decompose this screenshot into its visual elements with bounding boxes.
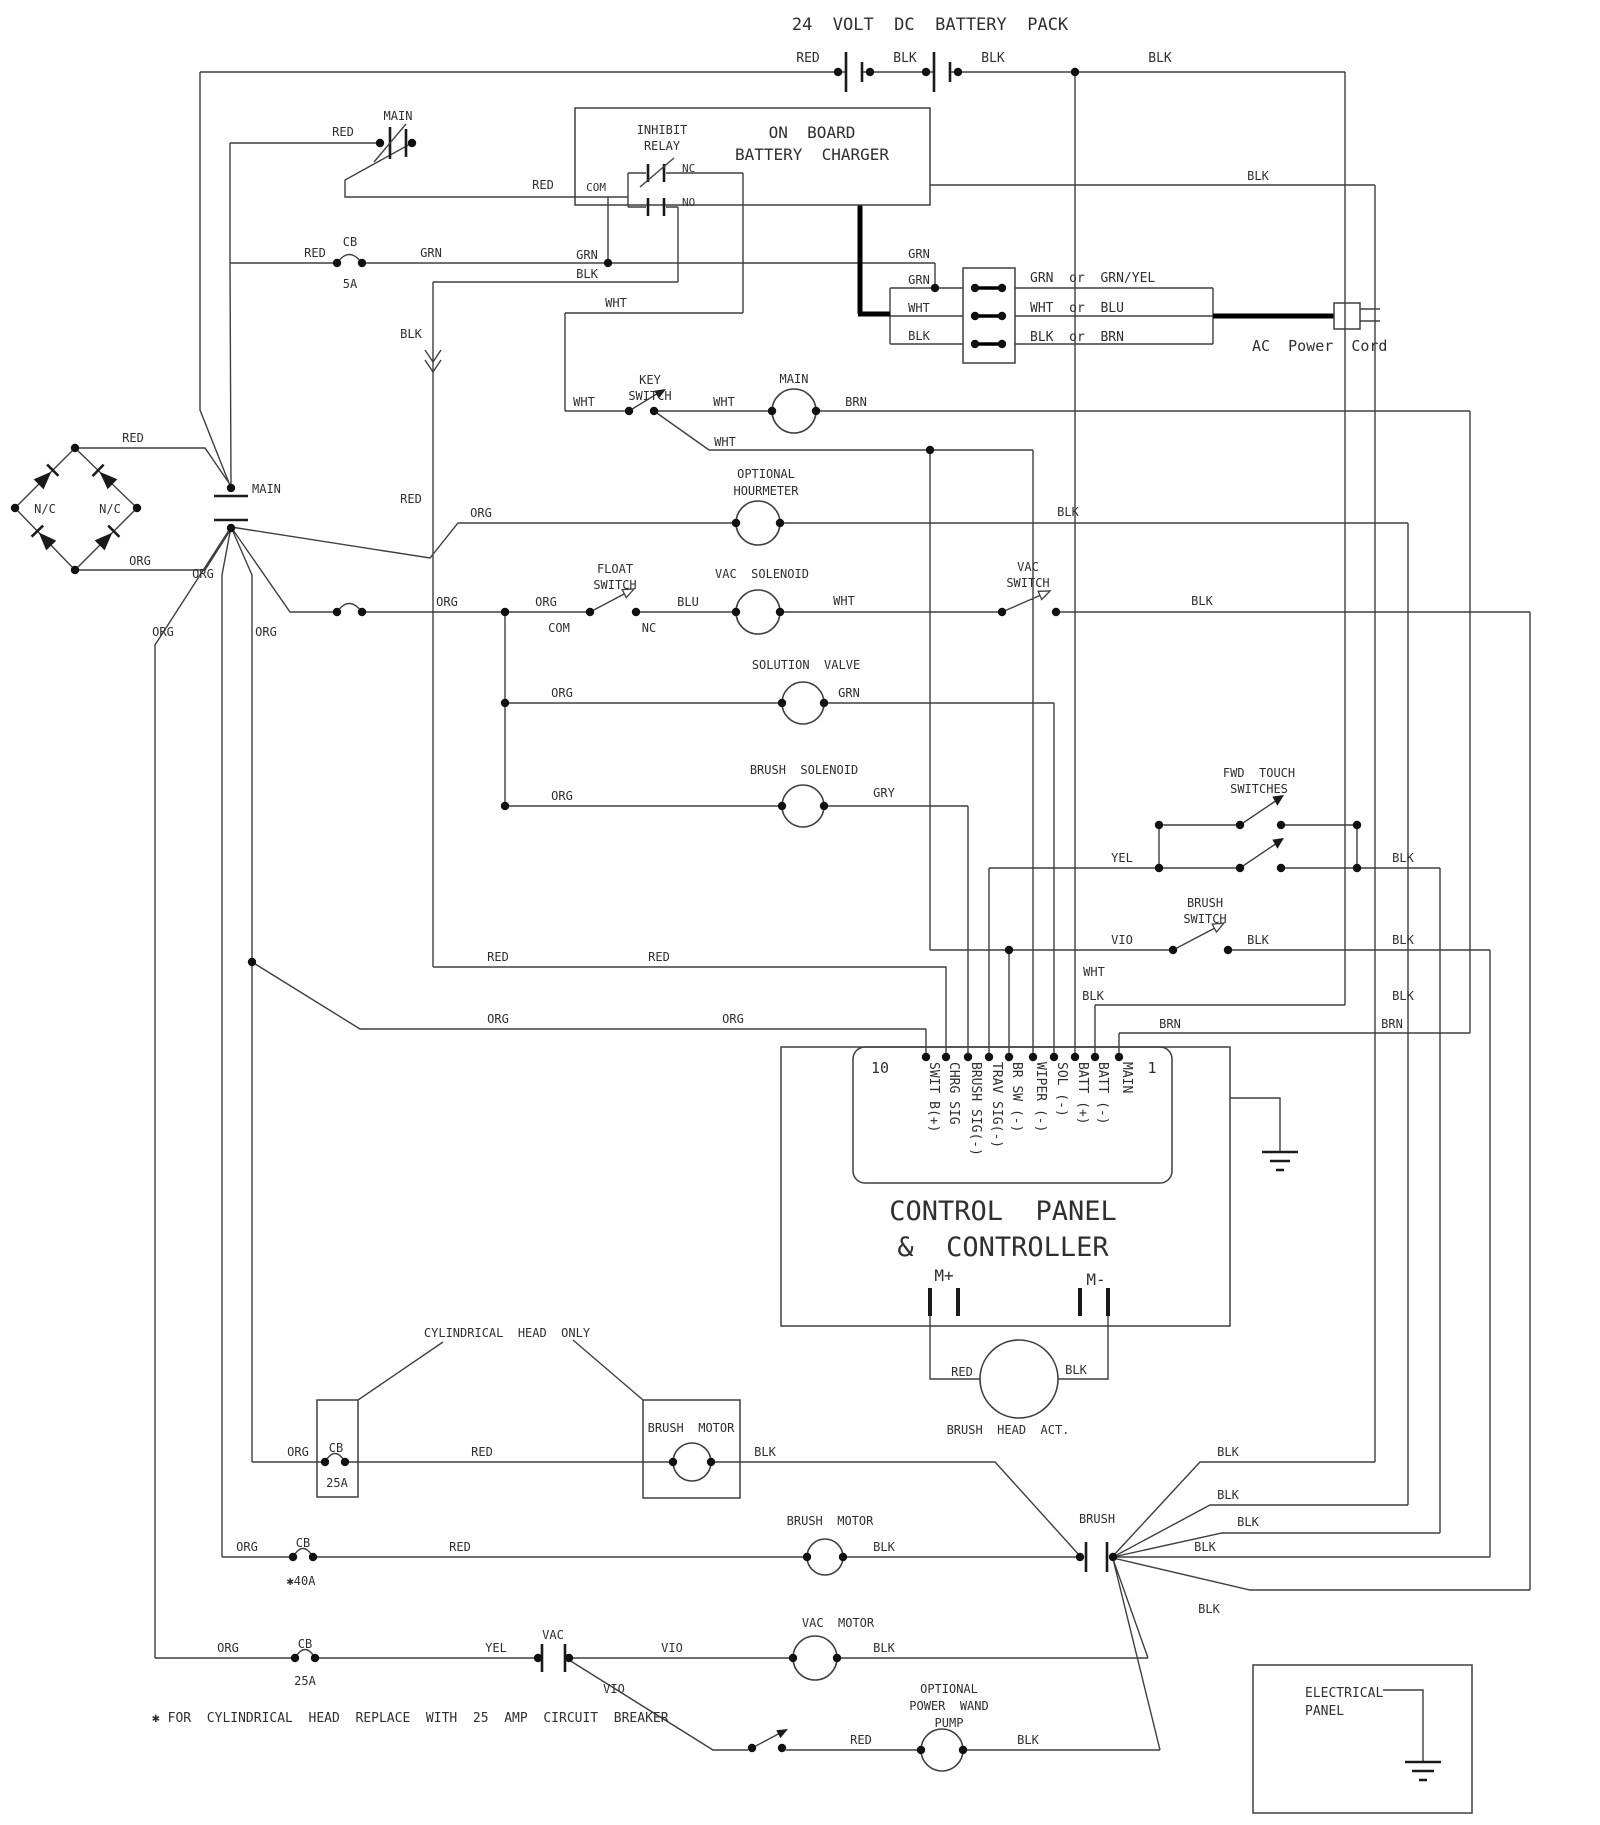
junction-dot bbox=[1224, 946, 1232, 954]
junction-dot bbox=[227, 484, 235, 492]
label-fan-blk-3: BLK bbox=[1237, 1515, 1259, 1529]
label-bridge-nc-right: N/C bbox=[99, 502, 121, 516]
label-floatswitch-org2: ORG bbox=[535, 595, 557, 609]
junction-dot bbox=[931, 284, 939, 292]
junction-dot bbox=[669, 1458, 677, 1466]
junction-dot bbox=[333, 259, 341, 267]
junction-dot bbox=[248, 958, 256, 966]
label-main-switch-label: MAIN bbox=[384, 109, 413, 123]
junction-dot bbox=[604, 259, 612, 267]
junction-dot bbox=[1109, 1553, 1117, 1561]
label-brushmotor2-blk: BLK bbox=[873, 1540, 895, 1554]
label-solutionvalve-grn: GRN bbox=[838, 686, 860, 700]
label-vacmotor-blk: BLK bbox=[873, 1641, 895, 1655]
label-hourmeter-2: HOURMETER bbox=[733, 484, 799, 498]
label-battery-blk-3: BLK bbox=[1148, 51, 1172, 66]
junction-dot bbox=[227, 524, 235, 532]
ac-plug bbox=[1334, 303, 1360, 329]
label-cb2-amps: 25A bbox=[326, 1476, 348, 1490]
junction-dot bbox=[1071, 68, 1079, 76]
junction-dot bbox=[71, 444, 79, 452]
junction-dot bbox=[632, 608, 640, 616]
label-ac-alt-wht: WHT or BLU bbox=[1030, 301, 1124, 316]
junction-dot bbox=[1091, 1053, 1099, 1061]
fwd-touch-arrow-icon bbox=[1272, 838, 1284, 849]
ground-icon bbox=[1262, 1152, 1298, 1170]
junction-dot bbox=[707, 1458, 715, 1466]
junction-dot bbox=[1155, 864, 1163, 872]
label-brushsolenoid-gry: GRY bbox=[873, 786, 895, 800]
brush-motor-1 bbox=[673, 1443, 711, 1481]
junction-dot bbox=[333, 608, 341, 616]
label-controller-name-2: & CONTROLLER bbox=[897, 1232, 1109, 1263]
label-vacsolenoid-blu: BLU bbox=[677, 595, 699, 609]
label-bus-org-2: ORG bbox=[152, 625, 174, 639]
label-charger-blk-out: BLK bbox=[1247, 169, 1269, 183]
label-vacmotor-vio: VIO bbox=[661, 1641, 683, 1655]
junction-dot bbox=[922, 1053, 930, 1061]
junction-dot bbox=[971, 284, 979, 292]
label-brushsolenoid-org: ORG bbox=[551, 789, 573, 803]
junction-dot bbox=[501, 802, 509, 810]
label-cb1-grn: GRN bbox=[420, 246, 442, 260]
label-pin-sol: SOL (-) bbox=[1054, 1062, 1069, 1117]
junction-dot bbox=[971, 312, 979, 320]
label-keyswitch-1: KEY bbox=[639, 373, 661, 387]
junction-dot bbox=[985, 1053, 993, 1061]
junction-dot bbox=[358, 608, 366, 616]
junction-dot bbox=[650, 407, 658, 415]
label-act-blk: BLK bbox=[1065, 1363, 1087, 1377]
junction-dot bbox=[768, 407, 776, 415]
label-hourmeter-blk: BLK bbox=[1057, 505, 1079, 519]
label-orgrow-1: ORG bbox=[487, 1012, 509, 1026]
label-main-coil-label: MAIN bbox=[780, 372, 809, 386]
junction-dot bbox=[998, 284, 1006, 292]
junction-dot bbox=[1277, 864, 1285, 872]
junction-dot bbox=[998, 312, 1006, 320]
label-brushswitch-vio: VIO bbox=[1111, 933, 1133, 947]
label-blkrow-2: BLK bbox=[1392, 989, 1414, 1003]
solution-valve bbox=[782, 682, 824, 724]
junction-dot bbox=[954, 68, 962, 76]
label-brushmotor2-red: RED bbox=[449, 1540, 471, 1554]
label-vacsolenoid-wht: WHT bbox=[833, 594, 855, 608]
junction-dot bbox=[778, 1744, 786, 1752]
nc-slash bbox=[374, 124, 674, 187]
labels: 24 VOLT DC BATTERY PACKREDBLKBLKBLKMAINR… bbox=[34, 15, 1414, 1747]
label-keyswitch-2: SWITCH bbox=[628, 389, 671, 403]
label-main-disconnect-label: MAIN bbox=[252, 482, 281, 496]
inhibit-relay-plates bbox=[648, 164, 664, 216]
label-brushswitch-2: SWITCH bbox=[1183, 912, 1226, 926]
label-cb1-amps: 5A bbox=[343, 277, 358, 291]
label-floatswitch-nc: NC bbox=[642, 621, 656, 635]
label-fwdtouch-yel: YEL bbox=[1111, 851, 1133, 865]
junction-dot bbox=[1353, 864, 1361, 872]
label-floatswitch-com: COM bbox=[548, 621, 570, 635]
label-bridge-red: RED bbox=[122, 431, 144, 445]
label-keyswitch-wht-in: WHT bbox=[573, 395, 595, 409]
label-pin-trav-sig: TRAV SIG(-) bbox=[989, 1062, 1004, 1148]
brush-contact-plates bbox=[1086, 1542, 1107, 1572]
label-vacswitch-blk: BLK bbox=[1191, 594, 1213, 608]
label-pump-blk: BLK bbox=[1017, 1733, 1039, 1747]
junction-dot bbox=[1071, 1053, 1079, 1061]
label-brushmotor1-blk: BLK bbox=[754, 1445, 776, 1459]
junction-dot bbox=[1050, 1053, 1058, 1061]
label-brnrow-1: BRN bbox=[1159, 1017, 1181, 1031]
label-fwdtouch-blk: BLK bbox=[1392, 851, 1414, 865]
label-ac-grn-in: GRN bbox=[908, 247, 930, 261]
label-orgrow-2: ORG bbox=[722, 1012, 744, 1026]
junction-dot bbox=[1155, 821, 1163, 829]
label-pin-wiper: WIPER (-) bbox=[1033, 1062, 1048, 1132]
main-relay-coil bbox=[772, 389, 816, 433]
label-hourmeter-org: ORG bbox=[470, 506, 492, 520]
junction-dot bbox=[917, 1746, 925, 1754]
label-redrow-2: RED bbox=[648, 950, 670, 964]
label-ac-alt-blk: BLK or BRN bbox=[1030, 330, 1124, 345]
label-floatswitch-org1: ORG bbox=[436, 595, 458, 609]
label-solutionvalve-label: SOLUTION VALVE bbox=[752, 658, 860, 672]
label-cb2-label: CB bbox=[329, 1441, 343, 1455]
label-charger-title-1: ON BOARD bbox=[769, 123, 856, 142]
label-cb2-org: ORG bbox=[287, 1445, 309, 1459]
label-brushmotor2-label: BRUSH MOTOR bbox=[787, 1514, 874, 1528]
label-vac-contact-label: VAC bbox=[542, 1628, 564, 1642]
junction-dot bbox=[778, 802, 786, 810]
label-splice-red: RED bbox=[400, 492, 422, 506]
label-hourmeter-1: OPTIONAL bbox=[737, 467, 795, 481]
junction-dot bbox=[803, 1553, 811, 1561]
junction-dot bbox=[501, 608, 509, 616]
junction-dot bbox=[321, 1458, 329, 1466]
label-terminal-m-plus: M+ bbox=[934, 1266, 953, 1285]
ground-icon bbox=[1405, 1762, 1441, 1780]
junction-dot bbox=[341, 1458, 349, 1466]
label-pin-brush-sig: BRUSH SIG(-) bbox=[968, 1062, 983, 1156]
wiring-diagram-page: 24 VOLT DC BATTERY PACKREDBLKBLKBLKMAINR… bbox=[0, 0, 1600, 1825]
label-terminal-m-minus: M- bbox=[1086, 1270, 1105, 1289]
label-cb4-org: ORG bbox=[217, 1641, 239, 1655]
junction-dot bbox=[289, 1553, 297, 1561]
wires bbox=[75, 72, 1530, 1762]
junction-dot bbox=[776, 608, 784, 616]
junction-dot bbox=[789, 1654, 797, 1662]
label-pin-number-1: 1 bbox=[1147, 1059, 1156, 1077]
label-fan-blk-4: BLK bbox=[1194, 1540, 1216, 1554]
label-top-title: 24 VOLT DC BATTERY PACK bbox=[792, 15, 1069, 35]
junction-dot bbox=[922, 68, 930, 76]
junction-dot bbox=[1169, 946, 1177, 954]
label-cb4-label: CB bbox=[298, 1637, 312, 1651]
label-brushswitch-blk2: BLK bbox=[1392, 933, 1414, 947]
label-cb3-amps: ✱40A bbox=[287, 1574, 317, 1588]
junction-dot bbox=[820, 699, 828, 707]
label-brushmotor1-label: BRUSH MOTOR bbox=[648, 1421, 735, 1435]
label-act-label: BRUSH HEAD ACT. bbox=[947, 1423, 1070, 1437]
junction-dot bbox=[309, 1553, 317, 1561]
label-cb1-label: CB bbox=[343, 235, 357, 249]
junction-dot bbox=[971, 340, 979, 348]
junction-dot bbox=[959, 1746, 967, 1754]
label-vacsolenoid-label: VAC SOLENOID bbox=[715, 567, 809, 581]
brush-solenoid bbox=[782, 785, 824, 827]
label-inhibit-relay-1: INHIBIT bbox=[637, 123, 688, 137]
label-solutionvalve-org: ORG bbox=[551, 686, 573, 700]
label-vacmotor-yel: YEL bbox=[485, 1641, 507, 1655]
label-grn-feed: GRN bbox=[576, 248, 598, 262]
brush-motor1-box bbox=[643, 1400, 740, 1498]
junction-dot bbox=[839, 1553, 847, 1561]
label-pin-br-sw: BR SW (-) bbox=[1009, 1062, 1024, 1132]
junction-dot bbox=[133, 504, 141, 512]
label-electrical-panel-1: ELECTRICAL bbox=[1305, 1686, 1383, 1701]
label-act-red: RED bbox=[951, 1365, 973, 1379]
label-pin-number-10: 10 bbox=[871, 1059, 889, 1077]
junction-dot bbox=[866, 68, 874, 76]
label-bridge-nc-left: N/C bbox=[34, 502, 56, 516]
label-floatswitch-2: SWITCH bbox=[593, 578, 636, 592]
label-fan-blk-5: BLK bbox=[1198, 1602, 1220, 1616]
junction-dot bbox=[1236, 821, 1244, 829]
brush-head-actuator bbox=[980, 1340, 1058, 1418]
label-bus-org-3: ORG bbox=[255, 625, 277, 639]
junction-dot bbox=[291, 1654, 299, 1662]
junction-dot bbox=[964, 1053, 972, 1061]
label-wht-row: WHT bbox=[605, 296, 627, 310]
label-charger-title-2: BATTERY CHARGER bbox=[735, 145, 889, 164]
junction-dot bbox=[1076, 1553, 1084, 1561]
junction-dot bbox=[358, 259, 366, 267]
label-redrow-1: RED bbox=[487, 950, 509, 964]
junction-dot bbox=[1353, 821, 1361, 829]
label-keyswitch-wht-out: WHT bbox=[713, 395, 735, 409]
main-disconnect-plates bbox=[214, 496, 248, 520]
label-pump-vio: VIO bbox=[603, 1682, 625, 1696]
label-brushsolenoid-label: BRUSH SOLENOID bbox=[750, 763, 858, 777]
junction-dot bbox=[1029, 1053, 1037, 1061]
label-relay-com: COM bbox=[586, 181, 606, 194]
junction-dot bbox=[1277, 821, 1285, 829]
power-wand-pump bbox=[921, 1729, 963, 1771]
label-pump-2: POWER WAND bbox=[909, 1699, 988, 1713]
label-bus-org-1: ORG bbox=[192, 567, 214, 581]
junction-dot bbox=[748, 1744, 756, 1752]
brush-motor-2 bbox=[807, 1539, 843, 1575]
label-pin-batt-minus: BATT (-) bbox=[1095, 1062, 1110, 1125]
label-blk-feed: BLK bbox=[576, 267, 598, 281]
label-battery-blk-2: BLK bbox=[981, 51, 1005, 66]
junction-dot bbox=[732, 519, 740, 527]
label-ac-grn: GRN bbox=[908, 273, 930, 287]
label-keyswitch-wht-branch: WHT bbox=[714, 435, 736, 449]
vac-contact-plates bbox=[542, 1644, 565, 1672]
junction-dot bbox=[812, 407, 820, 415]
wiring-diagram: 24 VOLT DC BATTERY PACKREDBLKBLKBLKMAINR… bbox=[0, 0, 1600, 1825]
label-main-switch-red: RED bbox=[332, 125, 354, 139]
label-relay-no: NO bbox=[682, 196, 695, 209]
junction-dot bbox=[1005, 1053, 1013, 1061]
junction-dot bbox=[11, 504, 19, 512]
label-cb3-org: ORG bbox=[236, 1540, 258, 1554]
label-controller-name-1: CONTROL PANEL bbox=[889, 1196, 1117, 1227]
label-ac-power-cord: AC Power Cord bbox=[1252, 337, 1387, 355]
label-ac-blk: BLK bbox=[908, 329, 930, 343]
junction-dot bbox=[1052, 608, 1060, 616]
fwd-touch-arrow-icon bbox=[1272, 795, 1284, 806]
vac-switch-arrow-icon bbox=[1038, 591, 1050, 600]
junction-dot bbox=[376, 139, 384, 147]
label-electrical-panel-2: PANEL bbox=[1305, 1704, 1344, 1719]
junction-dot bbox=[311, 1654, 319, 1662]
label-brushswitch-1: BRUSH bbox=[1187, 896, 1223, 910]
label-brnrow-2: BRN bbox=[1381, 1017, 1403, 1031]
label-cb4-amps: 25A bbox=[294, 1674, 316, 1688]
label-brushswitch-blk1: BLK bbox=[1247, 933, 1269, 947]
junction-dot bbox=[534, 1654, 542, 1662]
label-main-coil-brn: BRN bbox=[845, 395, 867, 409]
label-pin-main: MAIN bbox=[1119, 1062, 1134, 1093]
junction-dot bbox=[998, 608, 1006, 616]
label-pump-1: OPTIONAL bbox=[920, 1682, 978, 1696]
junction-dot bbox=[776, 519, 784, 527]
label-inhibit-relay-2: RELAY bbox=[644, 139, 681, 153]
label-pump-red: RED bbox=[850, 1733, 872, 1747]
label-footnote: ✱ FOR CYLINDRICAL HEAD REPLACE WITH 25 A… bbox=[152, 1711, 669, 1726]
junction-dots bbox=[11, 68, 1361, 1754]
label-ac-wht: WHT bbox=[908, 301, 930, 315]
label-vacswitch-1: VAC bbox=[1017, 560, 1039, 574]
junction-dot bbox=[820, 802, 828, 810]
label-brush-contact-label: BRUSH bbox=[1079, 1512, 1115, 1526]
junction-dot bbox=[942, 1053, 950, 1061]
junction-dot bbox=[732, 608, 740, 616]
label-cb3-label: CB bbox=[296, 1536, 310, 1550]
label-fan-blk-1: BLK bbox=[1217, 1445, 1239, 1459]
label-pin-chrg: CHRG SIG bbox=[946, 1062, 961, 1125]
junction-dot bbox=[833, 1654, 841, 1662]
hourmeter bbox=[736, 501, 780, 545]
label-fwdtouch-1: FWD TOUCH bbox=[1223, 766, 1295, 780]
junction-dot bbox=[501, 699, 509, 707]
controller-box bbox=[781, 1047, 1230, 1326]
label-pin-batt-plus: BATT (+) bbox=[1075, 1062, 1090, 1125]
label-relay-nc: NC bbox=[682, 162, 695, 175]
label-floatswitch-1: FLOAT bbox=[597, 562, 633, 576]
label-pump-3: PUMP bbox=[935, 1716, 964, 1730]
junction-dot bbox=[71, 566, 79, 574]
label-battery-blk-1: BLK bbox=[893, 51, 917, 66]
label-fwdtouch-2: SWITCHES bbox=[1230, 782, 1288, 796]
junction-dot bbox=[834, 68, 842, 76]
junction-dot bbox=[408, 139, 416, 147]
label-cb1-red: RED bbox=[304, 246, 326, 260]
label-cylindrical-callout: CYLINDRICAL HEAD ONLY bbox=[424, 1326, 591, 1340]
label-vacswitch-2: SWITCH bbox=[1006, 576, 1049, 590]
controller-terminals bbox=[928, 1288, 1110, 1316]
label-battery-red: RED bbox=[796, 51, 820, 66]
label-ac-alt-grn: GRN or GRN/YEL bbox=[1030, 271, 1155, 286]
junction-dot bbox=[565, 1654, 573, 1662]
junction-dot bbox=[586, 608, 594, 616]
label-fan-blk-2: BLK bbox=[1217, 1488, 1239, 1502]
junction-dot bbox=[926, 446, 934, 454]
junction-dot bbox=[625, 407, 633, 415]
junction-dot bbox=[1005, 946, 1013, 954]
junction-dot bbox=[998, 340, 1006, 348]
label-charger-com-red: RED bbox=[532, 178, 554, 192]
label-brushswitch-wht: WHT bbox=[1083, 965, 1105, 979]
label-splice-blk: BLK bbox=[400, 327, 422, 341]
junction-dot bbox=[1115, 1053, 1123, 1061]
vac-solenoid bbox=[736, 590, 780, 634]
label-pin-swit: SWIT B(+) bbox=[926, 1062, 941, 1132]
label-bridge-org: ORG bbox=[129, 554, 151, 568]
vac-motor bbox=[793, 1636, 837, 1680]
junction-dot bbox=[778, 699, 786, 707]
label-vacmotor-label: VAC MOTOR bbox=[802, 1616, 875, 1630]
label-blkrow-1: BLK bbox=[1082, 989, 1104, 1003]
label-brushmotor1-red: RED bbox=[471, 1445, 493, 1459]
junction-dot bbox=[1236, 864, 1244, 872]
